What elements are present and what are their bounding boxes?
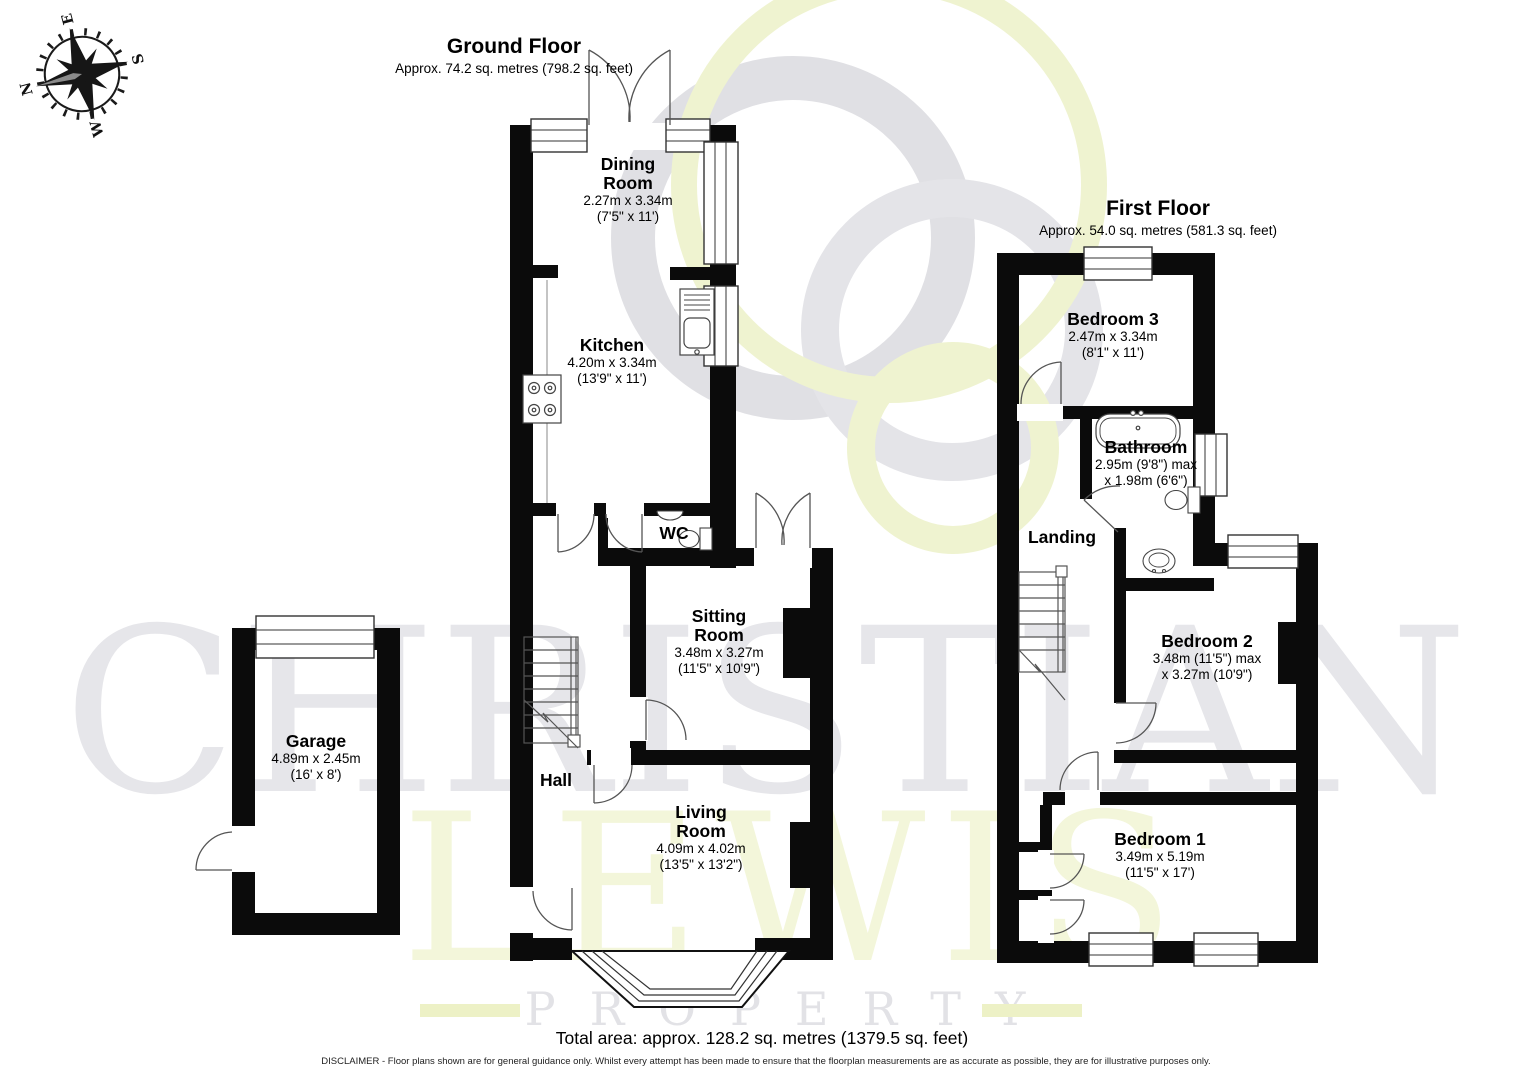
room-label-hall: Hall [516, 771, 596, 790]
compass-n: N [18, 80, 37, 97]
total-area-line: Total area: approx. 128.2 sq. metres (13… [556, 1028, 968, 1049]
ground-floor-subtitle: Approx. 74.2 sq. metres (798.2 sq. feet) [395, 61, 633, 76]
disclaimer-text: DISCLAIMER - Floor plans shown are for g… [321, 1056, 1210, 1067]
room-label-bathroom: Bathroom 2.95m (9'8") max x 1.98m (6'6") [1041, 438, 1251, 489]
compass-e: E [58, 11, 77, 26]
bathroom-toilet-icon [1165, 487, 1200, 513]
bathroom-sink-icon [1143, 549, 1175, 573]
room-label-wc: WC [644, 524, 704, 543]
room-label-living: Living Room 4.09m x 4.02m (13'5" x 13'2"… [654, 803, 749, 873]
ground-floor-title: Ground Floor [447, 35, 581, 59]
room-label-landing: Landing [997, 528, 1127, 547]
floorplan-canvas [0, 0, 1532, 1080]
floorplan-page: CHRISTIAN LEWIS PROPERTY N E S W [0, 0, 1532, 1080]
compass-s: S [129, 52, 146, 66]
room-label-kitchen: Kitchen 4.20m x 3.34m (13'9" x 11') [512, 336, 712, 387]
room-label-bedroom2: Bedroom 2 3.48m (11'5") max x 3.27m (10'… [1102, 632, 1312, 683]
room-label-bedroom1: Bedroom 1 3.49m x 5.19m (11'5" x 17') [1060, 830, 1260, 881]
compass-w: W [87, 118, 108, 138]
room-label-bedroom3: Bedroom 3 2.47m x 3.34m (8'1" x 11') [1013, 310, 1213, 361]
first-floor-subtitle: Approx. 54.0 sq. metres (581.3 sq. feet) [1039, 223, 1277, 238]
wc-sink-icon [657, 511, 683, 520]
bay-window [572, 951, 789, 1007]
room-label-sitting: Sitting Room 3.48m x 3.27m (11'5" x 10'9… [672, 607, 767, 677]
room-label-garage: Garage 4.89m x 2.45m (16' x 8') [216, 732, 416, 783]
room-label-dining: Dining Room 2.27m x 3.34m (7'5" x 11') [581, 155, 676, 225]
first-floor-title: First Floor [1106, 197, 1210, 221]
staircase-first [1019, 566, 1067, 700]
compass-rose: N E S W [18, 10, 146, 138]
